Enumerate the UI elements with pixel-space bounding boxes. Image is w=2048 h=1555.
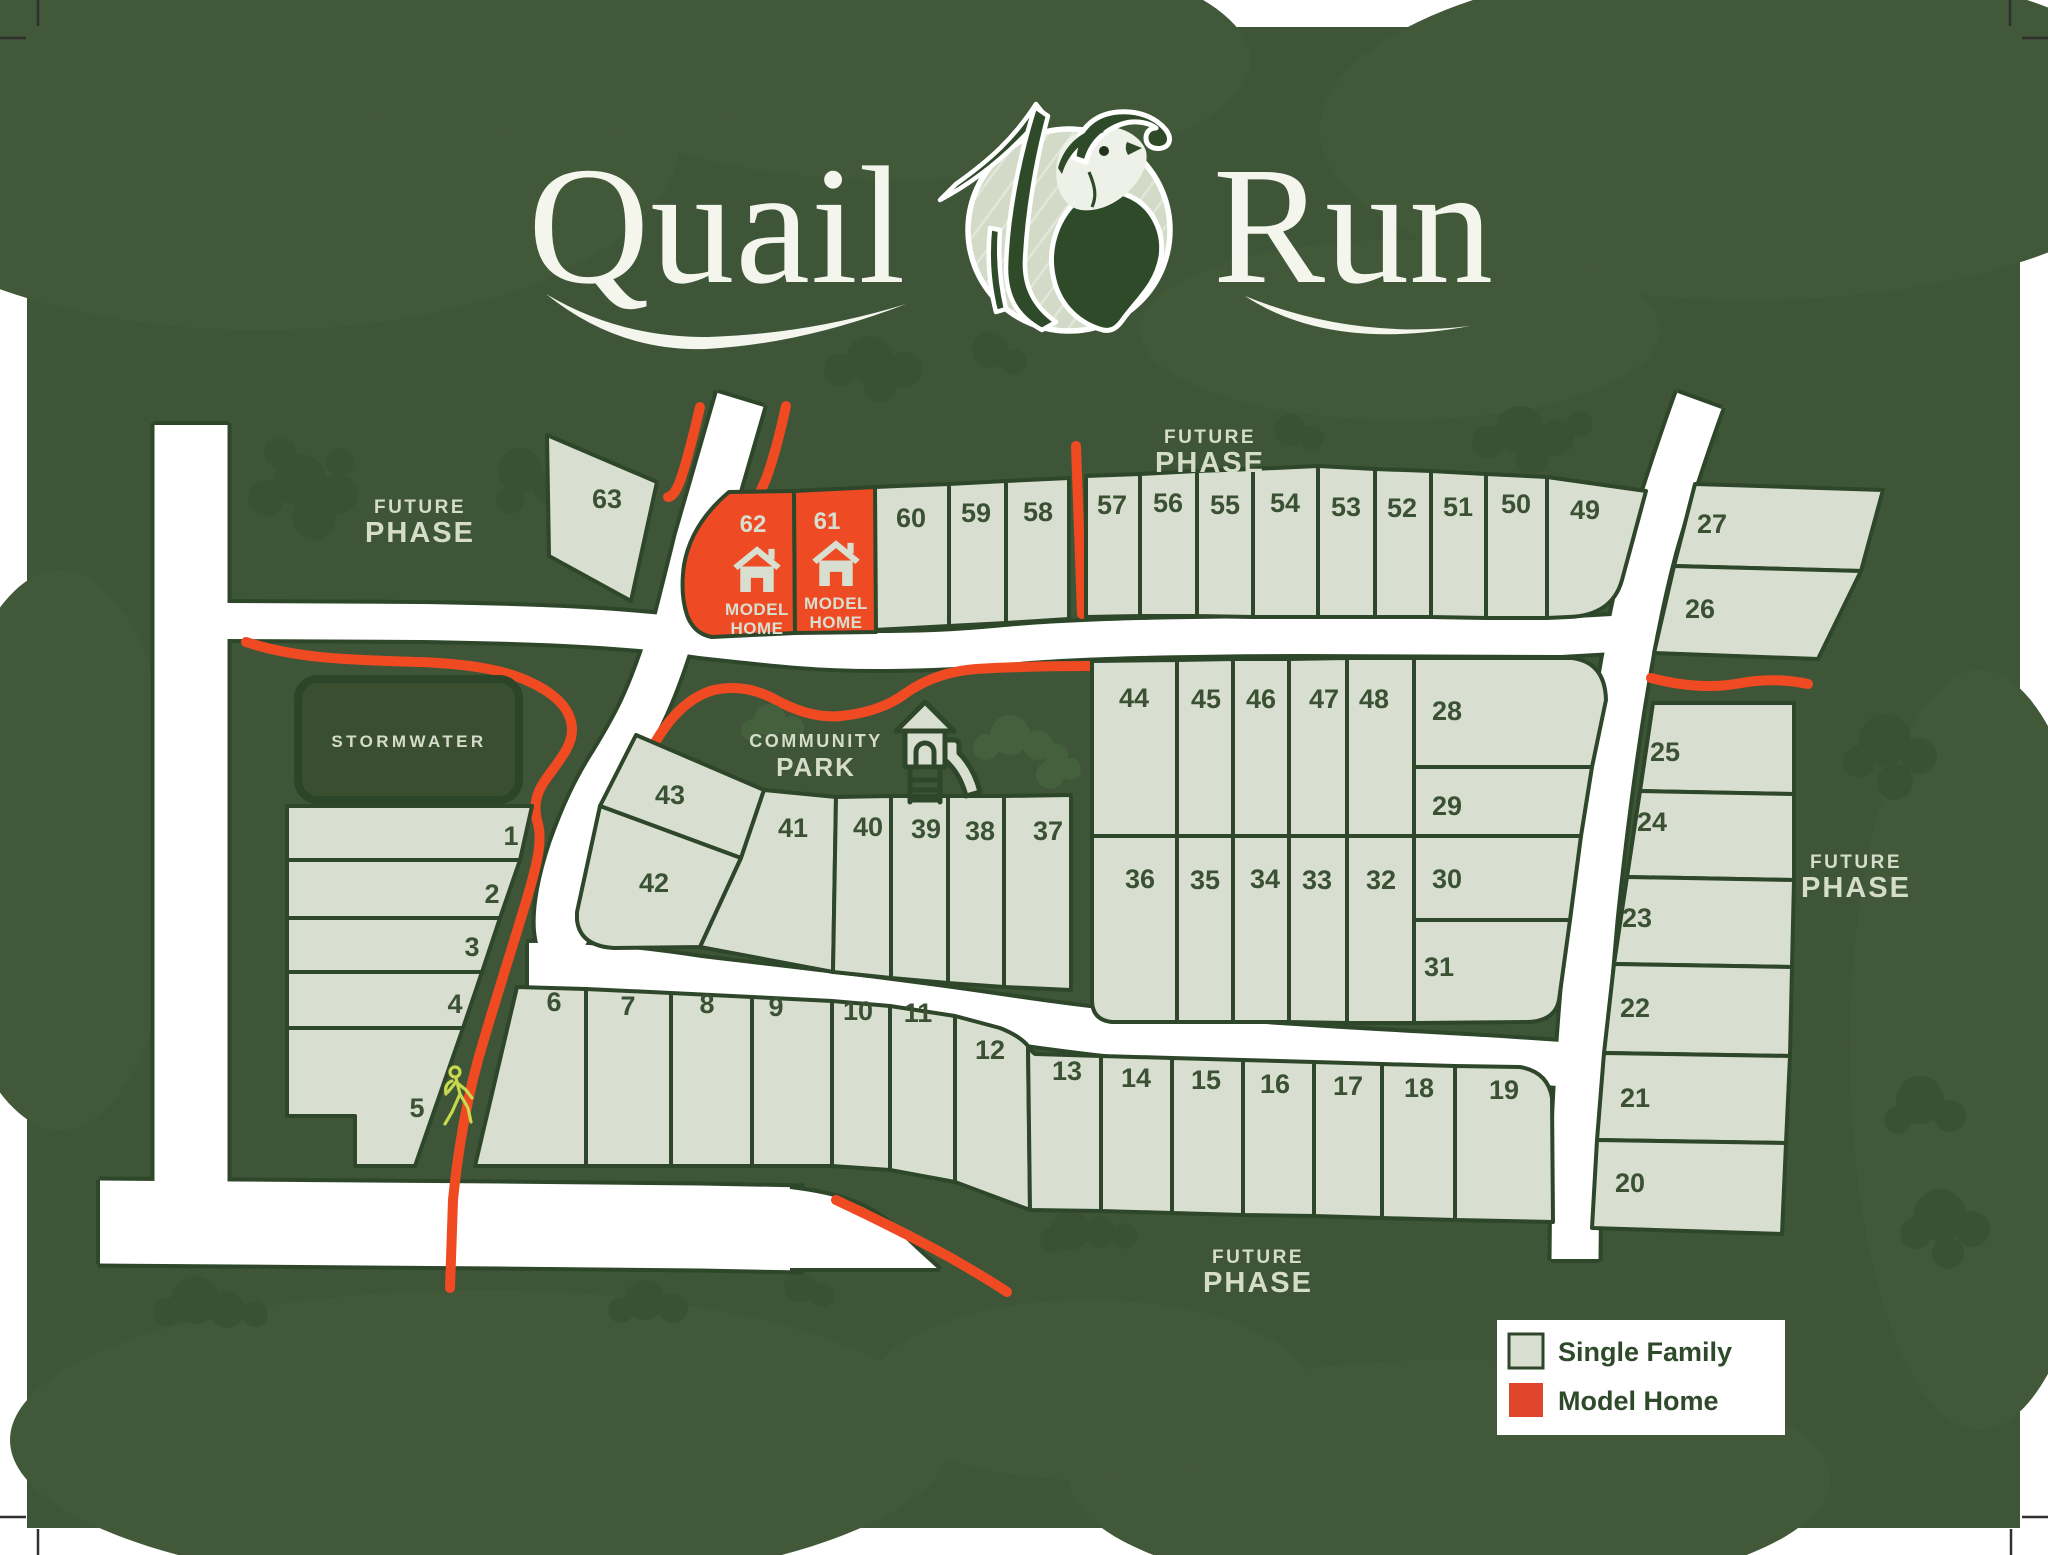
svg-text:9: 9 — [768, 992, 783, 1022]
svg-text:28: 28 — [1432, 696, 1462, 726]
svg-text:27: 27 — [1697, 509, 1727, 539]
svg-text:7: 7 — [620, 991, 635, 1021]
svg-text:30: 30 — [1432, 864, 1462, 894]
svg-text:52: 52 — [1387, 493, 1417, 523]
svg-text:50: 50 — [1501, 489, 1531, 519]
svg-text:54: 54 — [1270, 488, 1300, 518]
svg-text:43: 43 — [655, 780, 685, 810]
svg-text:PARK: PARK — [776, 752, 856, 782]
svg-text:24: 24 — [1637, 807, 1667, 837]
svg-text:PHASE: PHASE — [1203, 1267, 1313, 1299]
svg-text:Single Family: Single Family — [1558, 1337, 1732, 1367]
svg-text:17: 17 — [1333, 1071, 1363, 1101]
svg-text:38: 38 — [965, 816, 995, 846]
svg-text:42: 42 — [639, 868, 669, 898]
svg-text:10: 10 — [843, 996, 873, 1026]
svg-text:33: 33 — [1302, 865, 1332, 895]
svg-text:58: 58 — [1023, 497, 1053, 527]
svg-text:46: 46 — [1246, 684, 1276, 714]
svg-text:12: 12 — [975, 1035, 1005, 1065]
svg-text:62: 62 — [740, 511, 767, 538]
svg-text:36: 36 — [1125, 864, 1155, 894]
svg-text:FUTURE: FUTURE — [1810, 852, 1902, 873]
svg-text:3: 3 — [464, 932, 479, 962]
svg-text:29: 29 — [1432, 791, 1462, 821]
svg-text:14: 14 — [1121, 1063, 1151, 1093]
svg-text:20: 20 — [1615, 1168, 1645, 1198]
svg-text:HOME: HOME — [731, 619, 784, 638]
svg-text:PHASE: PHASE — [1801, 872, 1911, 904]
svg-text:MODEL: MODEL — [725, 600, 789, 619]
svg-text:2: 2 — [484, 879, 499, 909]
svg-text:49: 49 — [1570, 495, 1600, 525]
svg-text:55: 55 — [1210, 490, 1240, 520]
svg-text:Model Home: Model Home — [1558, 1386, 1719, 1416]
svg-text:32: 32 — [1366, 865, 1396, 895]
svg-text:26: 26 — [1685, 594, 1715, 624]
svg-text:5: 5 — [409, 1093, 424, 1123]
svg-text:48: 48 — [1359, 684, 1389, 714]
svg-text:41: 41 — [778, 813, 808, 843]
svg-text:45: 45 — [1191, 684, 1221, 714]
svg-text:31: 31 — [1424, 952, 1454, 982]
svg-text:35: 35 — [1190, 865, 1220, 895]
svg-text:16: 16 — [1260, 1069, 1290, 1099]
svg-text:FUTURE: FUTURE — [1164, 427, 1256, 448]
svg-text:13: 13 — [1052, 1056, 1082, 1086]
svg-text:21: 21 — [1620, 1083, 1650, 1113]
svg-text:FUTURE: FUTURE — [1212, 1247, 1304, 1268]
svg-text:6: 6 — [546, 987, 561, 1017]
svg-text:53: 53 — [1331, 492, 1361, 522]
svg-text:59: 59 — [961, 498, 991, 528]
svg-text:1: 1 — [503, 821, 518, 851]
svg-text:56: 56 — [1153, 488, 1183, 518]
svg-text:4: 4 — [447, 989, 462, 1019]
svg-text:44: 44 — [1119, 683, 1149, 713]
svg-text:47: 47 — [1309, 684, 1339, 714]
svg-text:FUTURE: FUTURE — [374, 497, 466, 518]
svg-text:11: 11 — [904, 998, 933, 1028]
svg-text:37: 37 — [1033, 816, 1063, 846]
svg-text:23: 23 — [1622, 903, 1652, 933]
svg-text:22: 22 — [1620, 993, 1650, 1023]
svg-text:PHASE: PHASE — [1155, 447, 1265, 479]
svg-text:Quail: Quail — [528, 133, 906, 319]
svg-text:40: 40 — [853, 812, 883, 842]
svg-text:COMMUNITY: COMMUNITY — [749, 731, 883, 751]
svg-text:51: 51 — [1443, 492, 1473, 522]
svg-text:60: 60 — [896, 503, 926, 533]
svg-text:57: 57 — [1097, 490, 1127, 520]
svg-text:MODEL: MODEL — [804, 594, 868, 613]
svg-text:19: 19 — [1489, 1075, 1519, 1105]
svg-text:Run: Run — [1213, 133, 1493, 319]
svg-text:HOME: HOME — [810, 613, 863, 632]
svg-text:STORMWATER: STORMWATER — [331, 732, 486, 751]
svg-text:39: 39 — [911, 814, 941, 844]
svg-text:15: 15 — [1191, 1065, 1221, 1095]
svg-text:63: 63 — [592, 484, 622, 514]
svg-text:8: 8 — [699, 989, 714, 1019]
svg-text:25: 25 — [1650, 737, 1680, 767]
svg-text:34: 34 — [1250, 864, 1280, 894]
svg-text:61: 61 — [814, 508, 841, 535]
svg-text:PHASE: PHASE — [365, 517, 475, 549]
svg-text:18: 18 — [1404, 1073, 1434, 1103]
